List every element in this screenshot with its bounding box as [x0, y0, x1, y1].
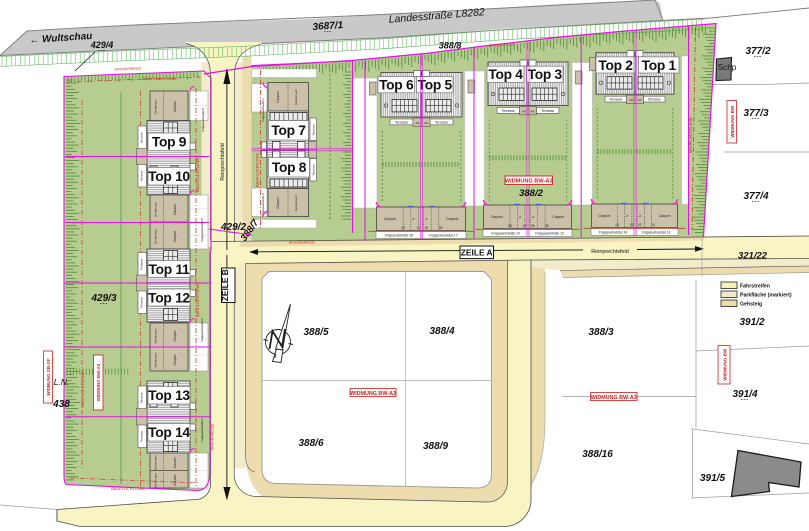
svg-text:388/3: 388/3: [588, 327, 613, 338]
svg-text:Folgeparkstellpl.14: Folgeparkstellpl.14: [599, 231, 628, 235]
svg-text:Schp: Schp: [718, 63, 737, 72]
svg-text:Carport: Carport: [659, 214, 671, 218]
svg-text:Top 4: Top 4: [488, 67, 523, 82]
svg-text:Top 6: Top 6: [379, 78, 414, 93]
svg-text:WIDMUNG BW-A3: WIDMUNG BW-A3: [96, 363, 101, 401]
svg-text:377/4: 377/4: [743, 191, 768, 202]
svg-text:BAUFLUCHTLINIE: BAUFLUCHTLINIE: [195, 283, 200, 317]
svg-text:WIDMUNG BW: WIDMUNG BW: [730, 105, 735, 138]
svg-text:Terrasse: Terrasse: [312, 124, 316, 136]
svg-text:Geräteraum: Geräteraum: [154, 228, 158, 244]
svg-text:Geräteraum: Geräteraum: [294, 89, 298, 106]
svg-text:BAUFLUCHTLINIE: BAUFLUCHTLINIE: [255, 153, 260, 187]
svg-text:Carport: Carport: [173, 457, 177, 468]
svg-text:Folgeparkstellpl.6: Folgeparkstellpl.6: [201, 108, 205, 132]
svg-text:Terrasse: Terrasse: [312, 164, 316, 176]
svg-text:L.N.: L.N.: [54, 377, 70, 387]
svg-text:Folgeparkstellpl.1: Folgeparkstellpl.1: [200, 418, 204, 442]
svg-text:438: 438: [52, 399, 70, 410]
svg-text:Terrasse: Terrasse: [395, 120, 408, 124]
svg-text:Geräteraum: Geräteraum: [154, 455, 158, 471]
svg-text:Carport: Carport: [598, 214, 610, 218]
svg-text:Geräteraum: Geräteraum: [154, 328, 158, 344]
svg-text:Carport: Carport: [173, 475, 177, 486]
svg-text:388/4: 388/4: [429, 326, 454, 337]
svg-text:ZEILE B: ZEILE B: [220, 269, 230, 301]
svg-text:Terrasse: Terrasse: [140, 297, 144, 308]
svg-text:03: 03: [630, 223, 634, 227]
svg-text:Carport: Carport: [173, 354, 177, 365]
svg-text:WIDMUNG BW-A3: WIDMUNG BW-A3: [350, 391, 396, 397]
svg-text:388/9: 388/9: [423, 441, 448, 452]
svg-text:Carport: Carport: [173, 231, 177, 242]
svg-text:06: 06: [531, 224, 535, 228]
svg-text:Folgeparkstellpl.18: Folgeparkstellpl.18: [385, 234, 414, 238]
svg-text:Top 7: Top 7: [271, 123, 306, 138]
svg-text:10: 10: [425, 226, 429, 230]
svg-text:429/3: 429/3: [90, 293, 116, 304]
svg-text:WIDMUNG BW-A3: WIDMUNG BW-A3: [591, 395, 637, 401]
svg-text:Reinprechtsfeld: Reinprechtsfeld: [220, 143, 226, 180]
svg-text:Reinprechtsfeld: Reinprechtsfeld: [591, 249, 628, 255]
svg-text:Top 11: Top 11: [149, 262, 191, 277]
svg-text:04: 04: [616, 223, 620, 227]
svg-text:02: 02: [638, 223, 642, 227]
svg-text:Geräteraum: Geräteraum: [294, 195, 298, 212]
svg-text:Carport: Carport: [491, 215, 503, 219]
svg-text:Carport: Carport: [173, 330, 177, 341]
svg-text:388/5: 388/5: [303, 327, 328, 338]
svg-text:Top 2: Top 2: [598, 58, 633, 73]
svg-text:Terrasse: Terrasse: [435, 120, 448, 124]
svg-text:GRUNDGRENZE: GRUNDGRENZE: [211, 423, 215, 450]
svg-text:01: 01: [652, 223, 656, 227]
svg-text:Folgeparkstellpl.5: Folgeparkstellpl.5: [200, 218, 204, 242]
svg-text:Top 3: Top 3: [528, 67, 563, 82]
svg-text:Terrasse: Terrasse: [648, 98, 661, 102]
svg-text:BAUFLUCHTLINIE: BAUFLUCHTLINIE: [80, 373, 85, 407]
svg-text:3687/1: 3687/1: [312, 20, 344, 33]
svg-text:WIDMUNG BW-A3: WIDMUNG BW-A3: [505, 178, 553, 184]
svg-text:Carport: Carport: [552, 215, 564, 219]
svg-text:Top 8: Top 8: [272, 160, 307, 175]
svg-text:Terrasse: Terrasse: [140, 170, 144, 181]
svg-text:GRUNDGRENZE: GRUNDGRENZE: [289, 240, 316, 244]
svg-text:Geräteraum: Geräteraum: [154, 201, 158, 217]
svg-text:Parkfläche (markiert): Parkfläche (markiert): [740, 293, 792, 299]
svg-text:Top 13: Top 13: [148, 388, 190, 403]
svg-text:391/5: 391/5: [700, 473, 725, 484]
svg-text:Carport: Carport: [446, 217, 458, 221]
svg-text:Top 14: Top 14: [148, 425, 190, 440]
svg-text:Top 1: Top 1: [642, 58, 677, 73]
svg-text:388/6: 388/6: [298, 438, 323, 449]
svg-text:05: 05: [545, 224, 549, 228]
svg-text:Carport: Carport: [276, 197, 280, 208]
svg-text:Folgeparkstellpl.15: Folgeparkstellpl.15: [535, 232, 564, 236]
svg-text:Top 10: Top 10: [148, 169, 190, 184]
svg-text:Folgeparkstellpl.4: Folgeparkstellpl.4: [261, 98, 265, 122]
svg-text:BAUFLUCHTLINIE: BAUFLUCHTLINIE: [111, 486, 145, 491]
svg-text:Terrasse: Terrasse: [541, 109, 554, 113]
svg-text:Geräteraum: Geräteraum: [154, 472, 158, 488]
svg-text:Top 5: Top 5: [418, 78, 453, 93]
svg-text:Carport: Carport: [173, 204, 177, 215]
svg-text:ZEILE A: ZEILE A: [461, 248, 493, 258]
svg-text:388/8: 388/8: [439, 41, 462, 51]
svg-text:388/2: 388/2: [519, 188, 543, 199]
svg-text:Terrasse: Terrasse: [140, 431, 144, 442]
svg-text:BAUFLUCHTLINIE: BAUFLUCHTLINIE: [143, 76, 177, 81]
svg-text:08: 08: [508, 224, 512, 228]
svg-text:Terrasse: Terrasse: [609, 98, 622, 102]
svg-text:391/2: 391/2: [739, 317, 764, 328]
svg-text:388/16: 388/16: [582, 449, 613, 460]
svg-text:Terrasse: Terrasse: [140, 259, 144, 270]
svg-text:Terrasse: Terrasse: [140, 392, 144, 403]
svg-text:WIDMUNG BW: WIDMUNG BW: [723, 348, 728, 381]
svg-text:Top 9: Top 9: [152, 135, 187, 150]
svg-text:11: 11: [417, 226, 421, 230]
svg-text:Folgeparkstellpl.13: Folgeparkstellpl.13: [642, 231, 671, 235]
svg-text:391/4: 391/4: [732, 389, 757, 400]
svg-text:09: 09: [439, 226, 443, 230]
svg-text:Geräteraum: Geräteraum: [154, 99, 158, 115]
svg-text:Carport: Carport: [276, 91, 280, 102]
svg-text:Carport: Carport: [384, 217, 396, 221]
svg-text:BAUFLUCHTLINIE: BAUFLUCHTLINIE: [195, 158, 200, 192]
svg-text:Terrasse: Terrasse: [140, 132, 144, 143]
svg-text:12: 12: [401, 226, 405, 230]
svg-text:Geräteraum: Geräteraum: [154, 352, 158, 368]
svg-text:Gehsteig: Gehsteig: [740, 302, 762, 308]
svg-text:Carport: Carport: [173, 101, 177, 112]
svg-text:WIDMUNG GB-GF: WIDMUNG GB-GF: [46, 358, 51, 396]
svg-text:377/3: 377/3: [743, 108, 768, 119]
svg-text:377/2: 377/2: [745, 46, 770, 57]
svg-text:BAUFLUCHTLINIE: BAUFLUCHTLINIE: [688, 117, 693, 153]
svg-text:Folgeparkstellpl.17: Folgeparkstellpl.17: [429, 234, 458, 238]
svg-text:Folgeparkstellpl.2: Folgeparkstellpl.2: [200, 318, 204, 342]
svg-text:Terrasse: Terrasse: [502, 109, 515, 113]
svg-text:Top 12: Top 12: [148, 291, 190, 306]
svg-text:429/4: 429/4: [90, 40, 114, 50]
svg-text:07: 07: [523, 224, 527, 228]
svg-text:Fahrstreifen: Fahrstreifen: [740, 284, 770, 290]
svg-text:321/22: 321/22: [738, 251, 768, 262]
svg-text:Folgeparkstellpl.16: Folgeparkstellpl.16: [491, 232, 520, 236]
